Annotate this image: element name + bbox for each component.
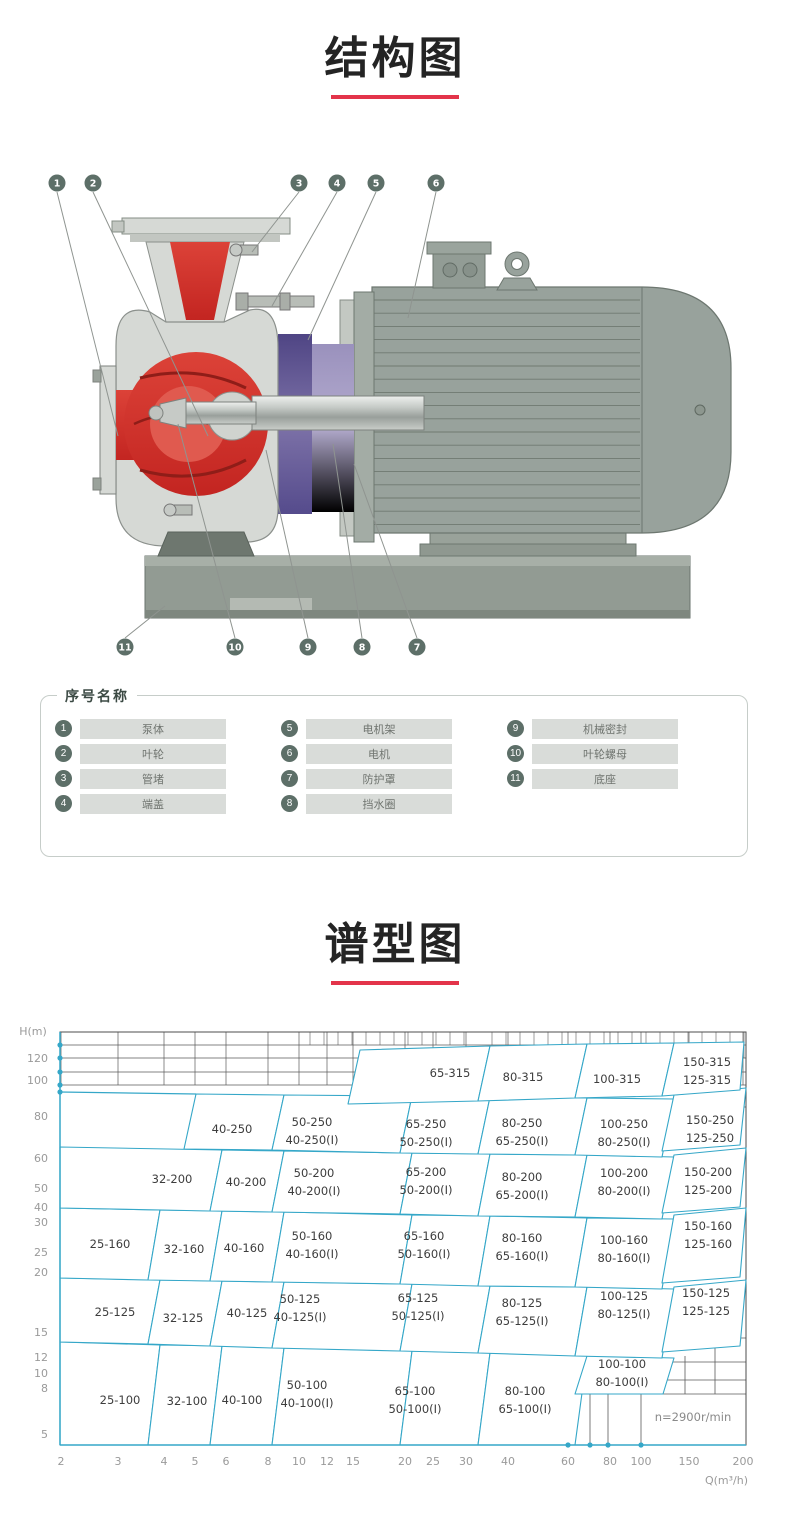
part-number-badge: 10 [507,745,524,762]
pump-region-label: 40-100 [222,1393,263,1407]
pump-region-label: 50-200(I) [399,1183,452,1197]
x-tick-label: 4 [161,1455,168,1468]
part-name-bar: 叶轮螺母 [532,744,678,764]
x-tick-label: 10 [292,1455,306,1468]
part-row: 2叶轮 [55,741,281,766]
pump-region-label: 32-100 [167,1394,208,1408]
axis-dot [605,1442,610,1447]
pump-region-label: 125-125 [682,1304,730,1318]
callout-number: 5 [373,179,380,190]
terminal-box [427,242,491,288]
pump-region-label: 25-100 [100,1393,141,1407]
stud-bolt [288,296,314,307]
part-name: 电机架 [363,721,396,737]
pump-region-label: 150-200 [684,1165,732,1179]
y-tick-label: 40 [34,1201,48,1214]
x-tick-label: 60 [561,1455,575,1468]
pump-region-label: 80-125(I) [597,1307,650,1321]
selection-chart: 25-10032-10040-10050-10040-100(I)65-1005… [0,1005,790,1520]
cable-gland [463,263,477,277]
pump-region-label: 80-100(I) [595,1375,648,1389]
part-name-bar: 泵体 [80,719,226,739]
pump-structure-diagram: 1234567891011 [30,140,760,680]
part-name: 防护罩 [363,771,396,787]
x-tick-label: 200 [733,1455,754,1468]
pump-foot [158,532,254,556]
base-top-edge [145,556,690,566]
terminal-box-cap [427,242,491,254]
callout-number: 6 [433,179,440,190]
eye-base [497,278,537,290]
lifting-eye [497,252,537,290]
pump-region-label: 65-315 [430,1066,471,1080]
pump-region-label: 32-200 [152,1172,193,1186]
structure-title-underline [331,95,459,99]
part-name: 管堵 [142,771,164,787]
part-row: 1泵体 [55,716,281,741]
nut-tip [149,406,163,420]
x-tick-label: 25 [426,1455,440,1468]
x-tick-label: 5 [192,1455,199,1468]
parts-panel: 序号名称 1泵体2叶轮3管堵4端盖5电机架6电机7防护罩8挡水圈9机械密封10叶… [40,695,748,857]
flange-tab [112,221,124,232]
pump-region-label: 50-250(I) [399,1135,452,1149]
pump-region-label: 40-125(I) [273,1310,326,1324]
part-number-badge: 2 [55,745,72,762]
part-name: 电机 [368,746,390,762]
y-tick-label: 10 [34,1367,48,1380]
part-row: 9机械密封 [507,716,733,741]
y-tick-label: 15 [34,1326,48,1339]
pump-region-label: 150-315 [683,1055,731,1069]
axis-dot [57,1089,62,1094]
callout-number: 4 [334,179,341,190]
pump-region-label: 100-200 [600,1166,648,1180]
pump-region-label: 65-100(I) [498,1402,551,1416]
pump-region-label: 50-100(I) [388,1402,441,1416]
part-name: 叶轮 [142,746,164,762]
base-bottom-edge [145,610,690,618]
pump-region-label: 100-100 [598,1357,646,1371]
pump-region-label: 150-250 [686,1113,734,1127]
y-tick-label: 5 [41,1428,48,1441]
axis-dot [57,1055,62,1060]
pump-region [662,1148,746,1213]
pump-region-label: 65-250(I) [495,1134,548,1148]
x-tick-label: 12 [320,1455,334,1468]
pump-region-label: 150-160 [684,1219,732,1233]
x-axis-label: Q(m³/h) [705,1474,748,1487]
y-tick-label: 20 [34,1266,48,1279]
pump-region-label: 80-125 [502,1296,543,1310]
pump-region-label: 65-200 [406,1165,447,1179]
shaft-main [252,396,424,430]
pump-region-label: 40-160(I) [285,1247,338,1261]
callout-number: 11 [118,643,131,654]
x-tick-label: 100 [631,1455,652,1468]
pump-region-label: 65-200(I) [495,1188,548,1202]
callout-number: 10 [228,643,242,654]
axis-dot [565,1442,570,1447]
part-row: 5电机架 [281,716,507,741]
pump-region-label: 80-250 [502,1116,543,1130]
pump-region-label: 125-315 [683,1073,731,1087]
pump-region-label: 65-125(I) [495,1314,548,1328]
pump-region-label: 50-200 [294,1166,335,1180]
pump-region-label: 80-160(I) [597,1251,650,1265]
callout-number: 1 [54,179,61,190]
part-name: 挡水圈 [363,796,396,812]
pump-region-label: 40-250 [212,1122,253,1136]
axis-dot [587,1442,592,1447]
callout-number: 7 [414,643,421,654]
part-name-bar: 叶轮 [80,744,226,764]
pipe-plug-head [230,244,242,256]
pump-region-label: 100-160 [600,1233,648,1247]
pump-region [478,1353,587,1445]
pump-region-label: 80-160 [502,1231,543,1245]
suction-flange [100,366,116,494]
part-number-badge: 11 [507,770,524,787]
pump-region-label: 80-250(I) [597,1135,650,1149]
section-title-chart: 谱型图 [0,908,790,985]
part-name-bar: 机械密封 [532,719,678,739]
part-row: 11底座 [507,766,733,791]
pump-region-label: 50-100 [287,1378,328,1392]
x-tick-label: 80 [603,1455,617,1468]
part-name: 底座 [594,771,616,787]
part-number-badge: 7 [281,770,298,787]
y-tick-label: 80 [34,1110,48,1123]
pump-region [478,1154,587,1217]
callout-number: 8 [359,643,366,654]
part-name-bar: 电机 [306,744,452,764]
pump-region-label: 40-100(I) [280,1396,333,1410]
part-name-bar: 挡水圈 [306,794,452,814]
pump-region-label: 80-100 [505,1384,546,1398]
pump-region-label: 65-250 [406,1117,447,1131]
drain-plug-head [164,504,176,516]
x-tick-label: 6 [223,1455,230,1468]
pump-region-label: 100-125 [600,1289,648,1303]
pump-region [662,1042,744,1096]
pump-region-label: 65-160 [404,1229,445,1243]
part-number-badge: 4 [55,795,72,812]
part-row: 3管堵 [55,766,281,791]
pump-region [575,1043,674,1098]
part-row: 10叶轮螺母 [507,741,733,766]
x-tick-label: 40 [501,1455,515,1468]
shaft-front [186,402,256,424]
pump-region-label: 50-125 [280,1292,321,1306]
y-tick-label: 120 [27,1052,48,1065]
motor [372,242,731,556]
pump-region-label: 65-160(I) [495,1249,548,1263]
pump-region-label: 65-125 [398,1291,439,1305]
pump-region-label: 50-125(I) [391,1309,444,1323]
stud-bolt-head [280,293,290,310]
speed-note: n=2900r/min [655,1410,731,1424]
pump-region-label: 65-100 [395,1384,436,1398]
x-tick-label: 30 [459,1455,473,1468]
pump-region-label: 50-160 [292,1229,333,1243]
parts-panel-title: 序号名称 [57,686,137,706]
pump-region-label: 40-125 [227,1306,268,1320]
discharge-flange-step [130,234,280,242]
part-number-badge: 3 [55,770,72,787]
y-axis-label: H(m) [19,1025,47,1038]
eye-hole [512,259,523,270]
part-number-badge: 6 [281,745,298,762]
parts-list: 1泵体2叶轮3管堵4端盖5电机架6电机7防护罩8挡水圈9机械密封10叶轮螺母11… [41,696,747,826]
stud-bolt-head [236,293,248,310]
y-tick-label: 30 [34,1216,48,1229]
pump-region-label: 25-125 [95,1305,136,1319]
x-tick-label: 8 [265,1455,272,1468]
pump-region-label: 50-160(I) [397,1247,450,1261]
callout-number: 3 [296,179,303,190]
part-number-badge: 5 [281,720,298,737]
part-name: 泵体 [142,721,164,737]
pump-region-label: 80-315 [503,1070,544,1084]
part-name: 叶轮螺母 [583,746,627,762]
pump-region-label: 125-160 [684,1237,732,1251]
part-number-badge: 9 [507,720,524,737]
motor-foot-lower [420,544,636,556]
pump-region [60,1147,222,1211]
x-tick-label: 15 [346,1455,360,1468]
y-tick-label: 60 [34,1152,48,1165]
part-row: 4端盖 [55,791,281,816]
callout-number: 9 [305,643,312,654]
pump-region-label: 40-160 [224,1241,265,1255]
pump-region-label: 125-250 [686,1131,734,1145]
chart-title-text: 谱型图 [0,908,790,972]
y-tick-label: 8 [41,1382,48,1395]
x-tick-label: 3 [115,1455,122,1468]
part-row: 8挡水圈 [281,791,507,816]
pump-region-label: 25-160 [90,1237,131,1251]
pump-region-label: 125-200 [684,1183,732,1197]
boundary-curve [60,1092,196,1094]
pump-region-label: 150-125 [682,1286,730,1300]
motor-foot-upper [430,532,626,544]
part-number-badge: 1 [55,720,72,737]
axis-dot [57,1082,62,1087]
pump-region-label: 100-250 [600,1117,648,1131]
x-tick-label: 150 [679,1455,700,1468]
pump-region-label: 80-200(I) [597,1184,650,1198]
endcap-bolt [695,405,705,415]
pump-region-label: 50-250 [292,1115,333,1129]
y-tick-label: 12 [34,1351,48,1364]
flange-bolt [93,478,101,490]
axis-dot [57,1042,62,1047]
pump-region-label: 40-250(I) [285,1133,338,1147]
section-title-structure: 结构图 [0,22,790,99]
x-tick-label: 20 [398,1455,412,1468]
cable-gland [443,263,457,277]
part-name-bar: 电机架 [306,719,452,739]
axis-dot [57,1069,62,1074]
part-row: 6电机 [281,741,507,766]
leader-line [57,192,118,436]
pump-region-label: 32-160 [164,1242,205,1256]
pump-region [272,1151,412,1214]
structure-title-text: 结构图 [0,22,790,86]
part-name-bar: 防护罩 [306,769,452,789]
part-row: 7防护罩 [281,766,507,791]
part-name: 端盖 [142,796,164,812]
x-tick-label: 2 [58,1455,65,1468]
pump-region-label: 80-200 [502,1170,543,1184]
y-tick-label: 50 [34,1182,48,1195]
pump-region-label: 32-125 [163,1311,204,1325]
axis-dot [638,1442,643,1447]
motor-body [372,287,731,533]
pump-region-label: 40-200(I) [287,1184,340,1198]
y-tick-label: 100 [27,1074,48,1087]
flange-bolt [93,370,101,382]
callout-number: 2 [90,179,97,190]
part-number-badge: 8 [281,795,298,812]
y-tick-label: 25 [34,1246,48,1259]
part-name: 机械密封 [583,721,627,737]
discharge-flange [122,218,290,234]
pump-region-label: 100-315 [593,1072,641,1086]
part-name-bar: 底座 [532,769,678,789]
part-name-bar: 管堵 [80,769,226,789]
leader-line [272,192,337,306]
pump-region [400,1351,490,1445]
pump-region-label: 40-200 [226,1175,267,1189]
part-name-bar: 端盖 [80,794,226,814]
chart-title-underline [331,981,459,985]
